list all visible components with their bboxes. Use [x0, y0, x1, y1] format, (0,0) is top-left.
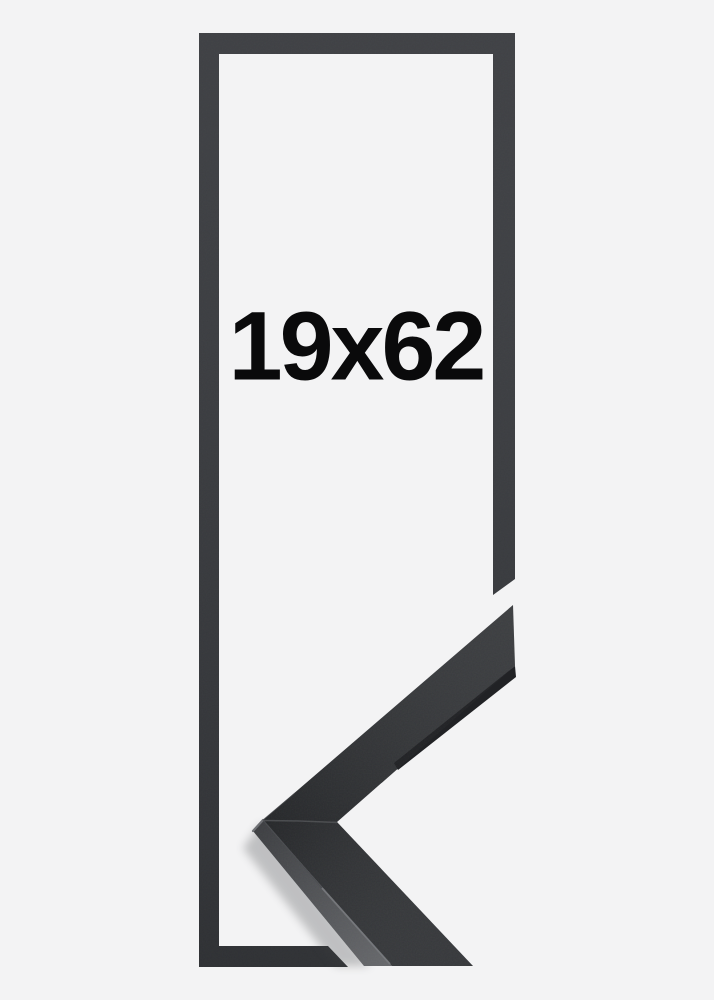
size-label: 19x62 [229, 291, 484, 403]
product-photo: 19x62 [0, 0, 714, 1000]
frame-illustration [0, 0, 714, 1000]
